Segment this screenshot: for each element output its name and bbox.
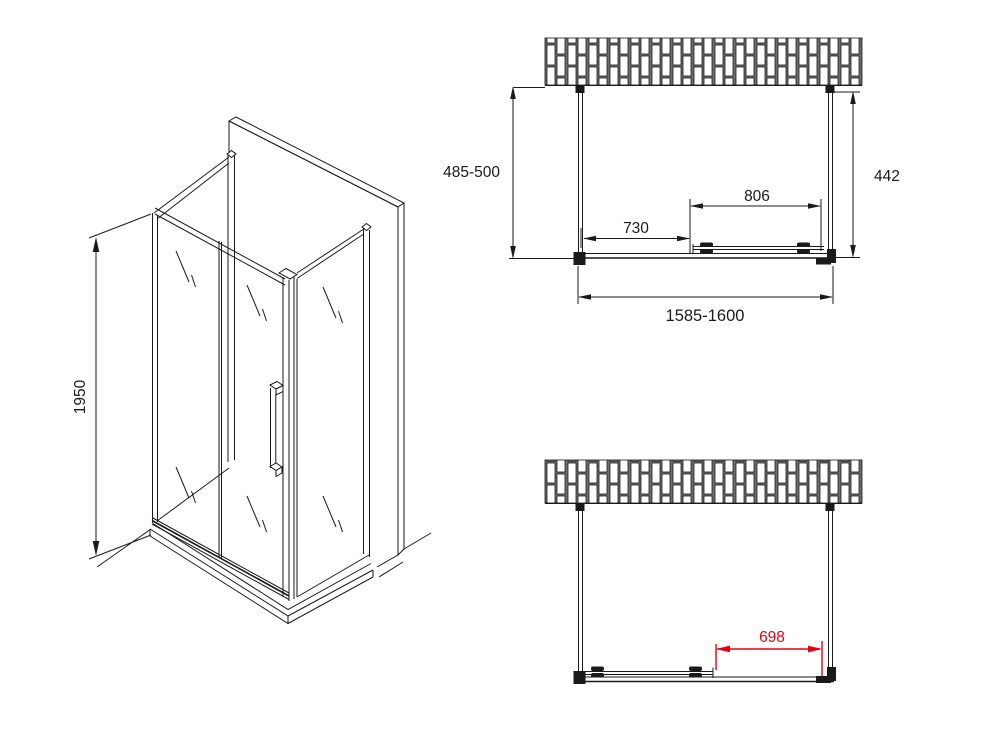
wall-strip bbox=[229, 117, 431, 577]
wall-hatch bbox=[545, 38, 862, 85]
left-side-panel bbox=[153, 151, 237, 524]
total-width-label: 1585-1600 bbox=[666, 307, 745, 325]
door-track-plan bbox=[578, 243, 834, 259]
height-dimension: 1950 bbox=[72, 214, 151, 559]
door-width-label: 806 bbox=[744, 188, 770, 205]
right-side-panel bbox=[297, 224, 371, 598]
front-plan-view: 698 bbox=[545, 460, 862, 684]
door-track-plan-open bbox=[578, 667, 834, 682]
floor-edge-left bbox=[97, 529, 151, 567]
total-width-dimension: 1585-1600 bbox=[578, 266, 833, 325]
panel-depth-label: 442 bbox=[874, 168, 900, 185]
front-sliding-unit bbox=[152, 208, 297, 601]
glass-sparkles bbox=[176, 251, 343, 532]
technical-drawing-canvas: 1950 bbox=[0, 0, 1000, 753]
left-panel-plan bbox=[574, 85, 586, 265]
fixed-panel-label: 730 bbox=[623, 220, 649, 237]
height-dimension-label: 1950 bbox=[72, 379, 89, 414]
isometric-view: 1950 bbox=[72, 117, 431, 624]
depth-dimension: 485-500 bbox=[443, 86, 576, 259]
door-handle[interactable] bbox=[270, 382, 283, 477]
fixed-panel-dimension: 730 bbox=[581, 220, 690, 248]
panel-depth-dimension: 442 bbox=[834, 91, 900, 258]
depth-dimension-label: 485-500 bbox=[443, 164, 500, 181]
left-panel-plan-open bbox=[574, 503, 586, 684]
right-panel-plan bbox=[816, 85, 836, 265]
opening-arrow-right bbox=[808, 646, 822, 653]
opening-dimension bbox=[716, 641, 822, 676]
right-panel-plan-open bbox=[816, 503, 836, 683]
opening-arrow-left bbox=[716, 646, 730, 653]
wall-hatch-bottom bbox=[545, 460, 862, 503]
drawing-svg: 1950 bbox=[0, 0, 1000, 753]
opening-dimension-label: 698 bbox=[759, 629, 785, 646]
top-plan-view: 485-500 442 730 806 bbox=[443, 38, 900, 325]
